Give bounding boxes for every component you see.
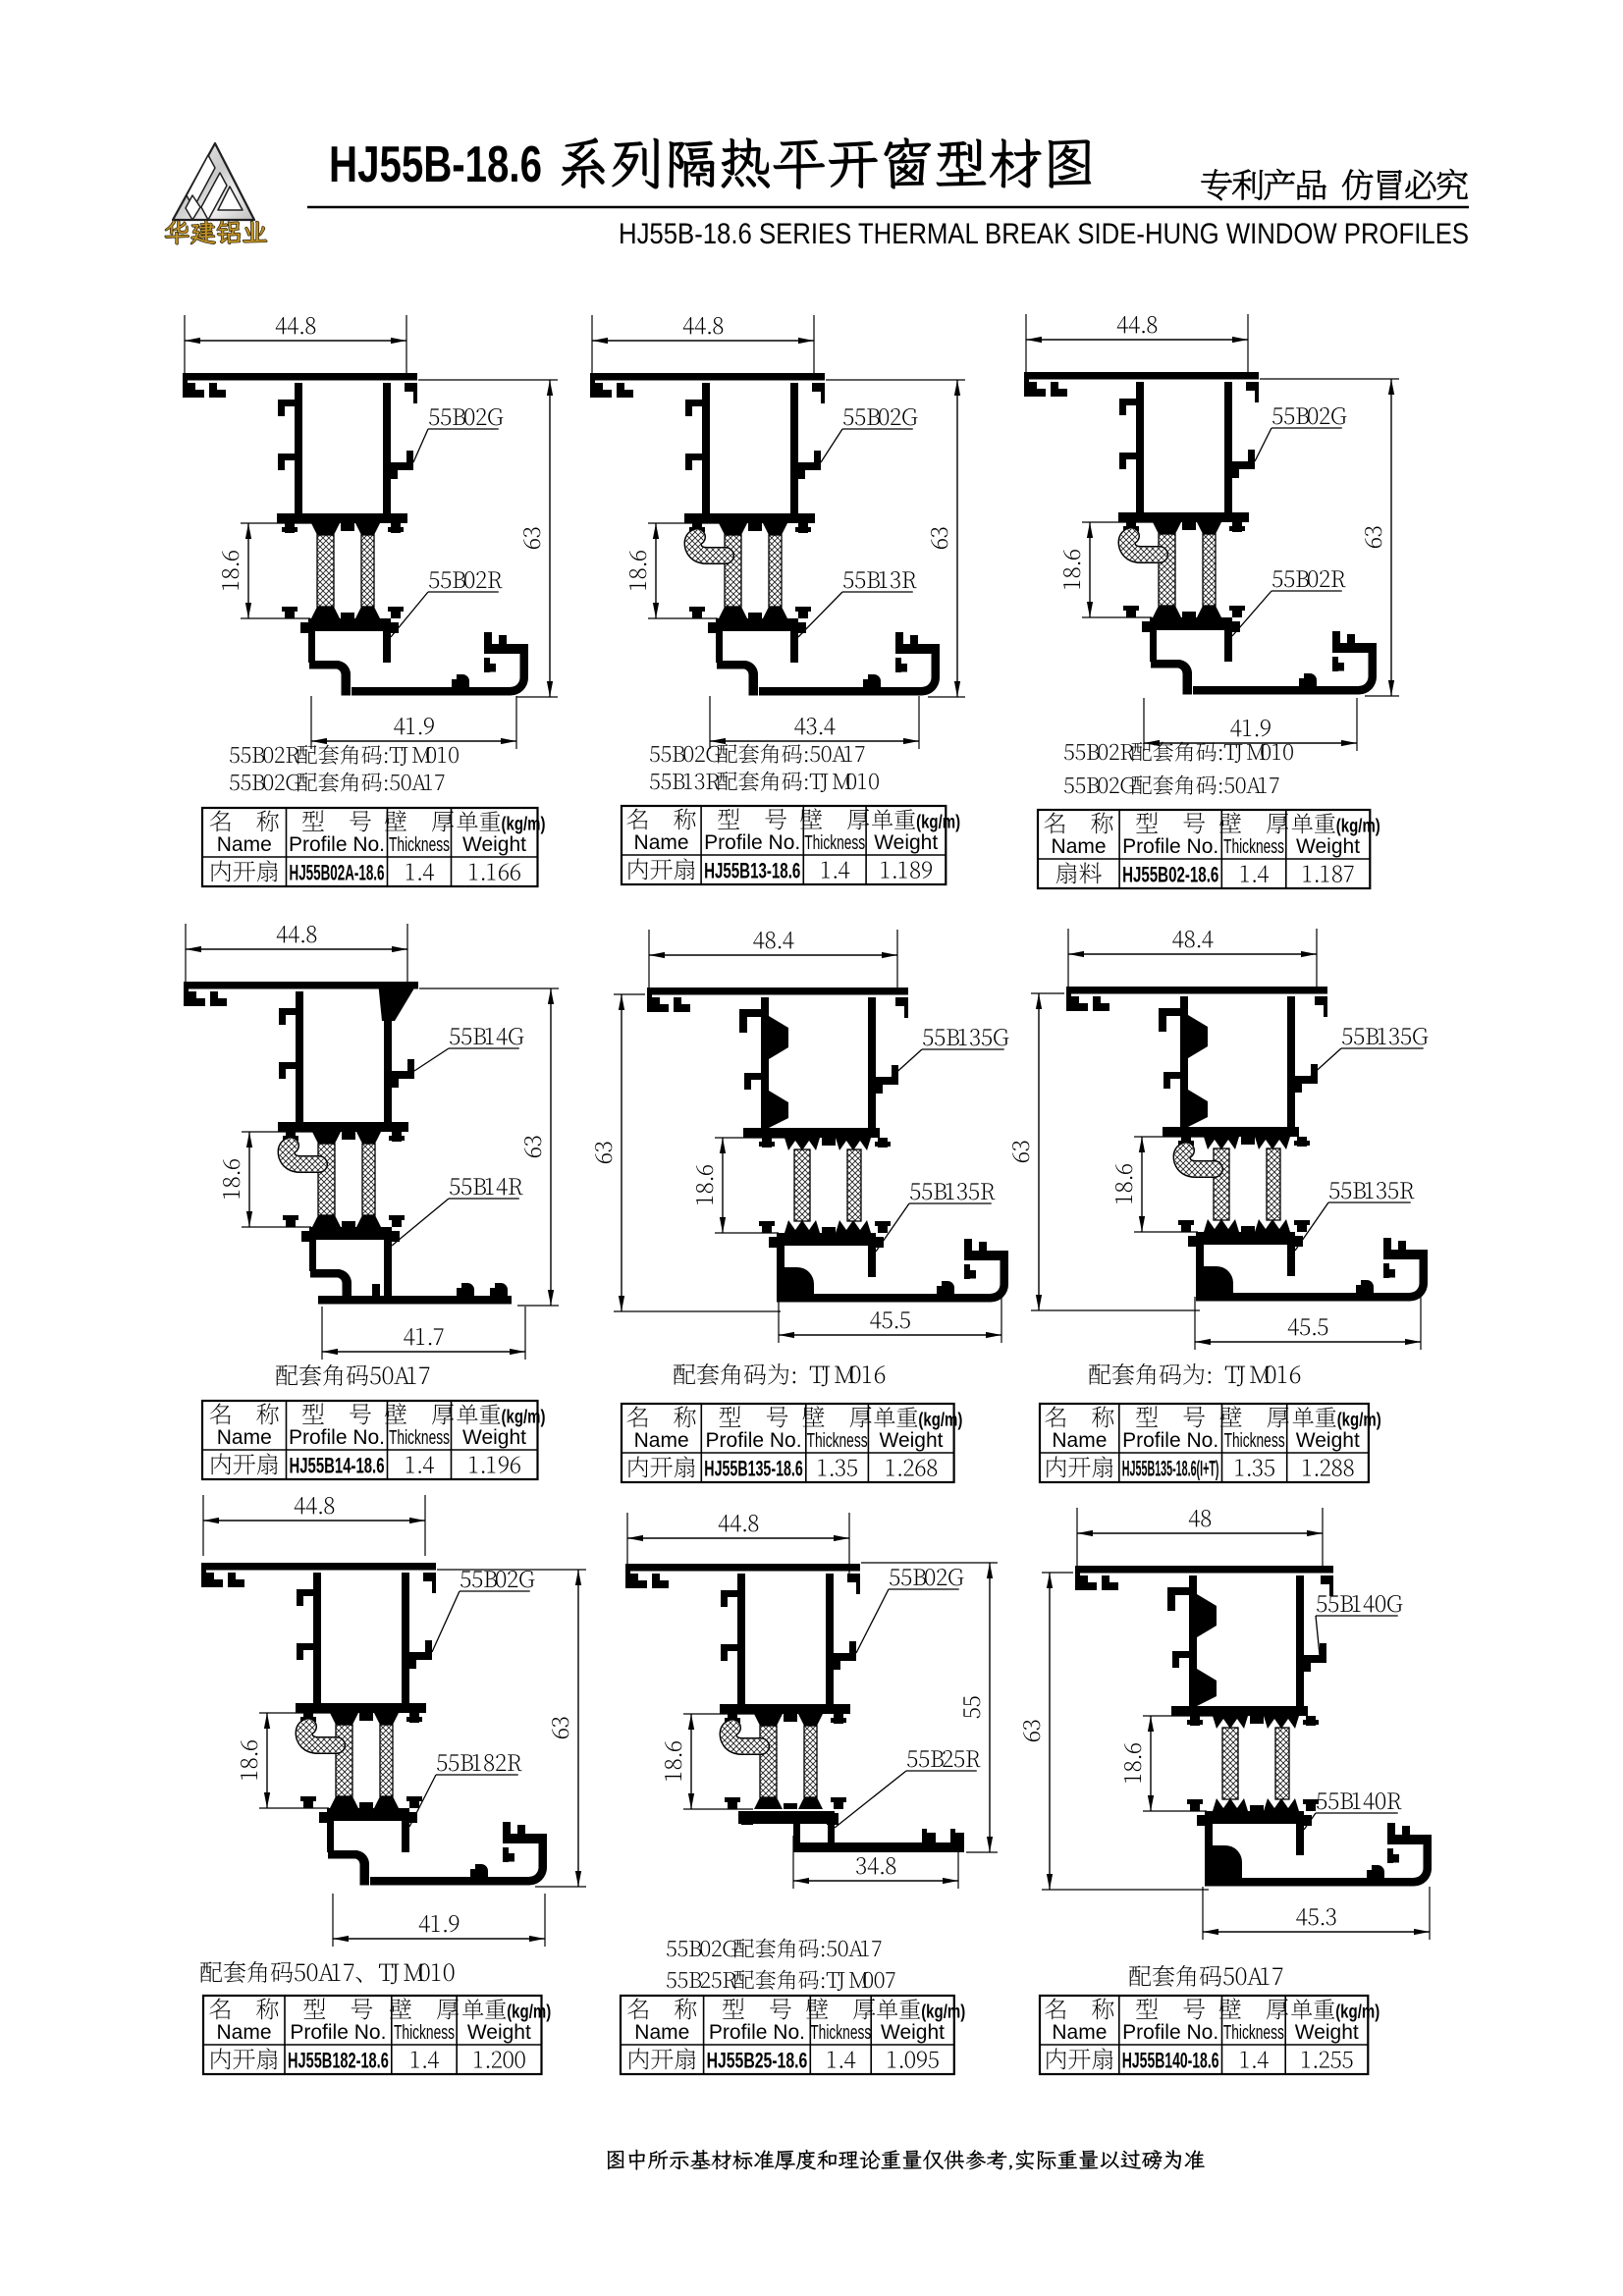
svg-text:Weight: Weight <box>462 1426 526 1449</box>
svg-text:Profile No.: Profile No. <box>290 2021 386 2044</box>
svg-text:HJ55B135-18.6(I+T): HJ55B135-18.6(I+T) <box>1122 1457 1219 1481</box>
svg-text:Thickness: Thickness <box>394 2022 455 2044</box>
svg-text:Thickness: Thickness <box>389 1427 450 1449</box>
svg-text:Weight: Weight <box>880 1429 944 1452</box>
svg-text:Name: Name <box>634 831 689 854</box>
svg-text:Weight: Weight <box>1296 835 1360 858</box>
svg-text:(kg/m): (kg/m) <box>916 813 960 833</box>
svg-text:Profile No.: Profile No. <box>709 2021 805 2044</box>
svg-text:(kg/m): (kg/m) <box>1335 2002 1380 2023</box>
svg-text:Thickness: Thickness <box>389 834 450 856</box>
svg-text:Name: Name <box>217 1426 272 1449</box>
svg-text:Profile No.: Profile No. <box>704 831 800 854</box>
svg-text:Thickness: Thickness <box>1223 836 1284 858</box>
svg-text:HJ55B182-18.6: HJ55B182-18.6 <box>288 2049 389 2073</box>
svg-text:(kg/m): (kg/m) <box>1336 817 1380 837</box>
svg-text:Profile No.: Profile No. <box>706 1429 802 1452</box>
svg-text:(kg/m): (kg/m) <box>921 2002 965 2023</box>
svg-text:HJ55B135-18.6: HJ55B135-18.6 <box>704 1457 803 1481</box>
svg-text:Name: Name <box>634 2021 689 2044</box>
svg-text:Thickness: Thickness <box>810 2022 871 2044</box>
svg-text:HJ55B14-18.6: HJ55B14-18.6 <box>290 1454 385 1478</box>
svg-text:Thickness: Thickness <box>1223 2022 1284 2044</box>
svg-text:(kg/m): (kg/m) <box>502 815 546 835</box>
svg-text:Name: Name <box>1052 835 1107 858</box>
svg-text:(kg/m): (kg/m) <box>918 1411 962 1431</box>
svg-text:(kg/m): (kg/m) <box>507 2002 551 2023</box>
svg-text:HJ55B140-18.6: HJ55B140-18.6 <box>1122 2049 1219 2073</box>
svg-text:Weight: Weight <box>874 831 938 854</box>
svg-text:Thickness: Thickness <box>807 1430 868 1452</box>
svg-text:Weight: Weight <box>881 2021 945 2044</box>
svg-text:Profile No.: Profile No. <box>1122 1429 1218 1452</box>
svg-text:Weight: Weight <box>1296 1429 1360 1452</box>
svg-text:Profile No.: Profile No. <box>1122 835 1218 858</box>
svg-text:Thickness: Thickness <box>1224 1430 1285 1452</box>
svg-text:Name: Name <box>1052 2021 1107 2044</box>
svg-text:Name: Name <box>216 2021 271 2044</box>
svg-text:HJ55B02A-18.6: HJ55B02A-18.6 <box>290 861 385 885</box>
svg-text:HJ55B25-18.6: HJ55B25-18.6 <box>707 2049 808 2073</box>
svg-text:Weight: Weight <box>467 2021 531 2044</box>
svg-text:Thickness: Thickness <box>804 832 865 854</box>
svg-text:HJ55B-18.6 SERIES THERMAL BREA: HJ55B-18.6 SERIES THERMAL BREAK SIDE-HUN… <box>619 218 1469 250</box>
svg-text:Name: Name <box>217 833 272 856</box>
svg-text:Name: Name <box>1052 1429 1107 1452</box>
svg-text:Weight: Weight <box>462 833 526 856</box>
svg-text:HJ55B-18.6: HJ55B-18.6 <box>329 136 542 193</box>
svg-text:Weight: Weight <box>1295 2021 1359 2044</box>
svg-text:Profile No.: Profile No. <box>289 1426 385 1449</box>
svg-text:Profile No.: Profile No. <box>289 833 385 856</box>
svg-text:(kg/m): (kg/m) <box>502 1408 546 1428</box>
svg-text:Profile No.: Profile No. <box>1122 2021 1218 2044</box>
svg-text:Name: Name <box>634 1429 689 1452</box>
svg-text:HJ55B13-18.6: HJ55B13-18.6 <box>704 859 800 883</box>
svg-text:HJ55B02-18.6: HJ55B02-18.6 <box>1122 863 1218 887</box>
svg-text:(kg/m): (kg/m) <box>1337 1411 1381 1431</box>
